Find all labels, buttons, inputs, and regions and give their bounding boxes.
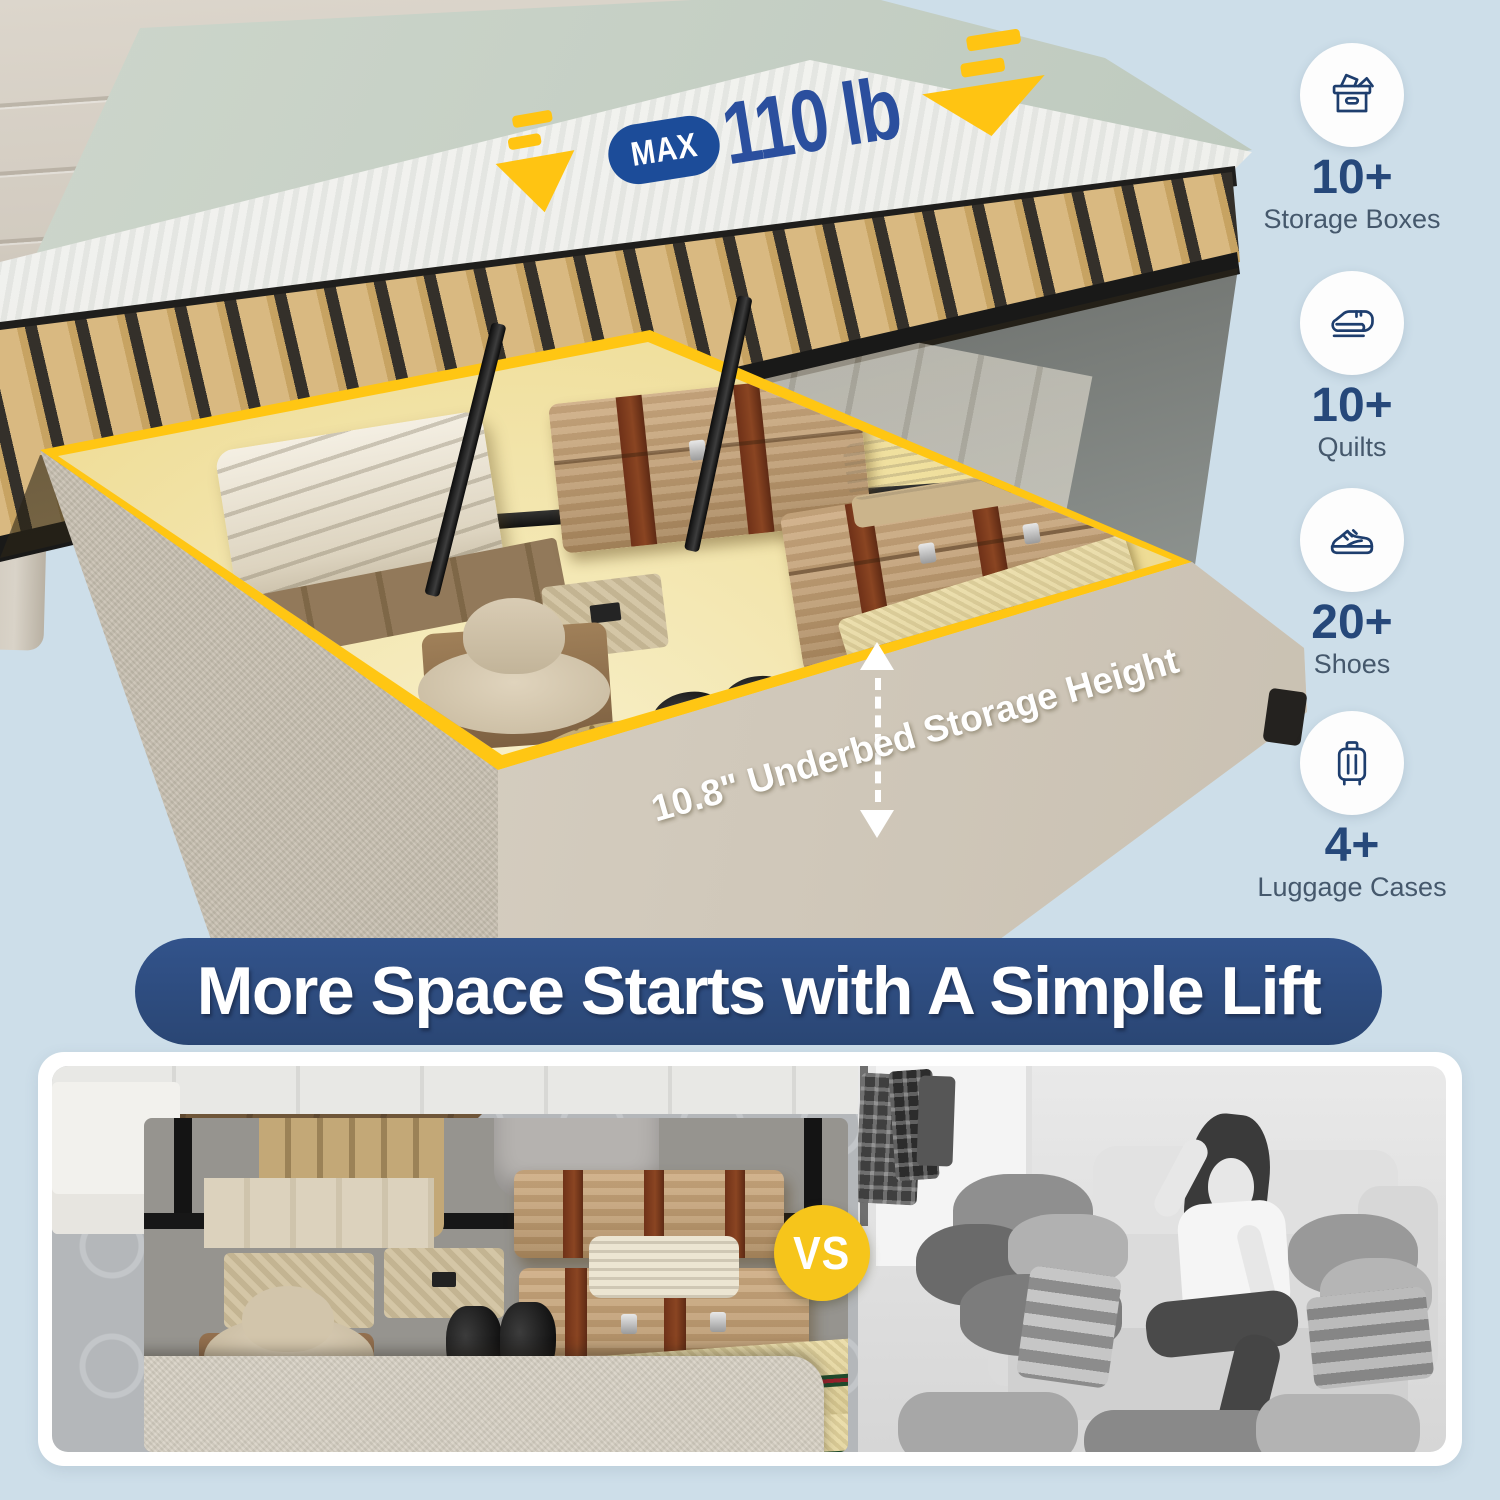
storage-box-icon — [1300, 43, 1404, 147]
feature-label: Quilts — [1247, 431, 1457, 463]
feature-count: 20+ — [1247, 598, 1457, 648]
feature-count: 10+ — [1247, 153, 1457, 203]
arrow-up-icon — [860, 642, 894, 670]
max-badge-label: MAX — [626, 115, 701, 185]
quilt-icon — [1300, 271, 1404, 375]
messy-room-photo — [858, 1066, 1446, 1452]
feature-storage-boxes: 10+ Storage Boxes — [1247, 43, 1457, 235]
floor-clothes — [898, 1392, 1078, 1452]
lift-frame-post — [174, 1118, 192, 1228]
vs-badge: VS — [774, 1205, 870, 1301]
arrow-dash — [960, 57, 1006, 78]
box-label — [432, 1272, 456, 1287]
trunk-latch — [621, 1314, 637, 1334]
trunk-latch — [710, 1312, 726, 1332]
feature-label: Luggage Cases — [1247, 871, 1457, 903]
sneaker-icon — [1320, 508, 1384, 572]
press-down-arrow-icon — [488, 105, 596, 231]
bed-base-front-rail — [144, 1356, 824, 1452]
floor-clothes — [1084, 1410, 1284, 1452]
trunk-latch — [1022, 523, 1041, 545]
organized-storage-photo — [52, 1066, 858, 1452]
arrow-down-icon — [860, 810, 894, 838]
feature-quilts: 10+ Quilts — [1247, 271, 1457, 463]
fedora-hat-crown — [463, 598, 565, 674]
feature-count: 4+ — [1247, 821, 1457, 871]
quilt-icon — [1320, 291, 1384, 355]
feature-label: Shoes — [1247, 648, 1457, 680]
knit-blanket — [589, 1236, 739, 1298]
open-bed-storage — [144, 1118, 848, 1452]
slat-board — [204, 1178, 434, 1248]
feature-count: 10+ — [1247, 381, 1457, 431]
trunk-latch — [918, 542, 937, 564]
arrow-head — [496, 150, 585, 219]
luggage-icon — [1300, 711, 1404, 815]
trunk-strap — [563, 1170, 583, 1258]
trunk-strap — [616, 395, 658, 547]
floor-clothes — [1256, 1394, 1420, 1452]
trunk-strap — [733, 382, 775, 534]
sneaker-icon — [1300, 488, 1404, 592]
product-infographic: 10.8" Underbed Storage Height MAX 110 lb… — [0, 0, 1500, 1500]
headline-banner: More Space Starts with A Simple Lift — [135, 938, 1382, 1045]
hanging-clothes — [916, 1075, 955, 1166]
vs-label: VS — [793, 1205, 850, 1301]
feature-label: Storage Boxes — [1247, 203, 1457, 235]
feature-shoes: 20+ Shoes — [1247, 488, 1457, 680]
arrow-dash — [507, 133, 542, 151]
fedora-hat-crown — [242, 1286, 334, 1352]
box-label — [589, 602, 621, 624]
luggage-icon — [1320, 731, 1384, 795]
feature-luggage: 4+ Luggage Cases — [1247, 711, 1457, 903]
storage-box-icon — [1320, 63, 1384, 127]
striped-cloth — [1016, 1265, 1123, 1389]
